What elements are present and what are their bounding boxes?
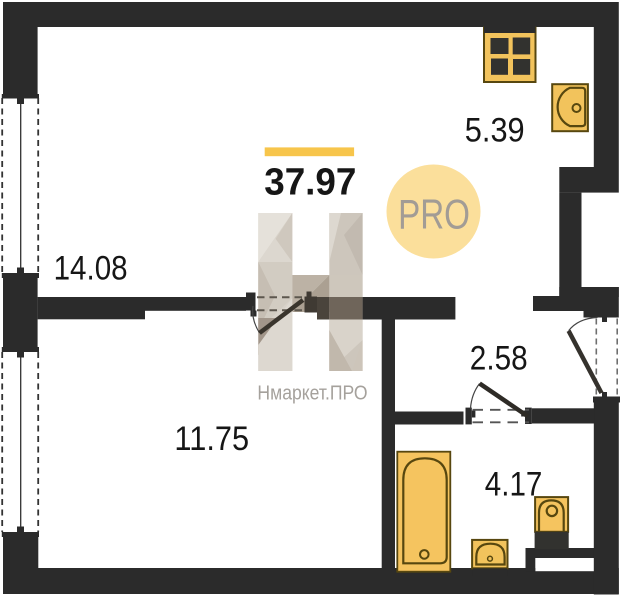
svg-text:PRO: PRO: [398, 192, 470, 239]
svg-text:Нмаркет.ПРО: Нмаркет.ПРО: [257, 381, 367, 403]
svg-text:2.58: 2.58: [470, 339, 528, 377]
svg-text:14.08: 14.08: [54, 249, 128, 287]
svg-text:4.17: 4.17: [485, 465, 543, 503]
svg-text:11.75: 11.75: [174, 420, 249, 458]
svg-text:5.39: 5.39: [465, 111, 525, 149]
svg-text:37.97: 37.97: [264, 160, 356, 203]
